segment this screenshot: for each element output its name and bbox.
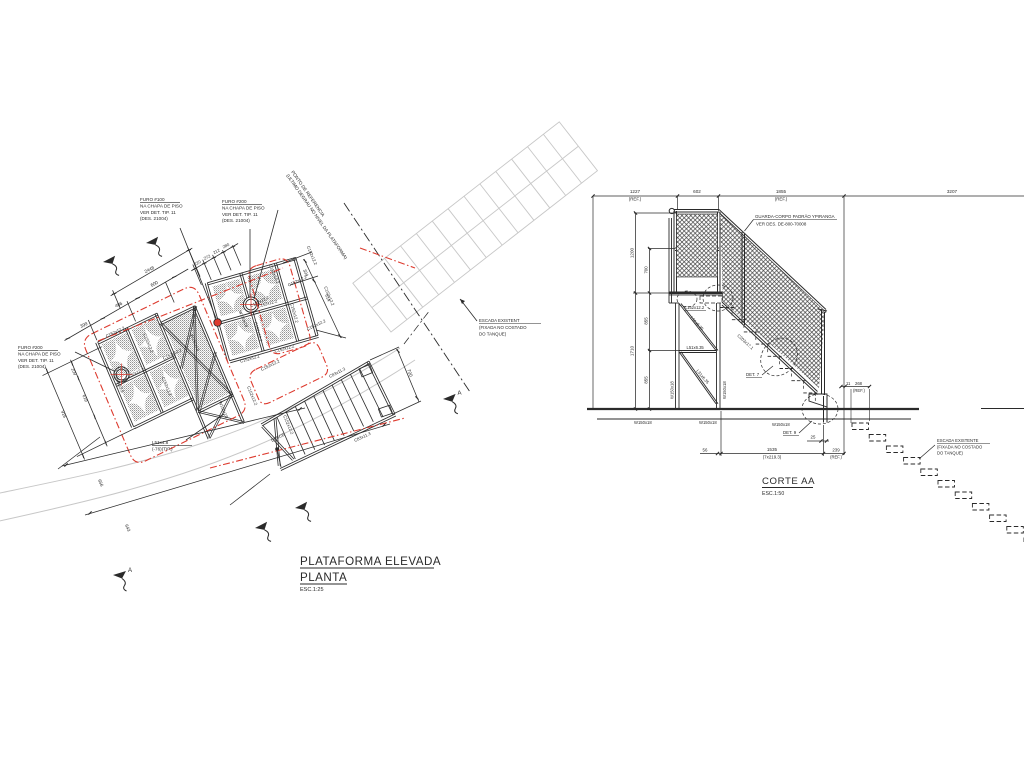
svg-text:VER DES. DE-800-70008: VER DES. DE-800-70008 xyxy=(756,222,807,227)
svg-text:CORTE AA: CORTE AA xyxy=(762,476,815,487)
svg-text:602: 602 xyxy=(693,189,701,194)
svg-text:W150x18: W150x18 xyxy=(722,381,727,399)
svg-text:W150x18: W150x18 xyxy=(670,381,675,399)
svg-text:(DES. 21004): (DES. 21004) xyxy=(18,364,46,369)
svg-text:268: 268 xyxy=(855,381,863,386)
svg-text:(-76)(TIP.): (-76)(TIP.) xyxy=(152,446,173,451)
svg-text:(7x219.3): (7x219.3) xyxy=(763,455,782,460)
svg-text:FURO #100: FURO #100 xyxy=(140,197,165,202)
svg-text:NA CHAPA DE PISO: NA CHAPA DE PISO xyxy=(222,205,265,210)
svg-text:700: 700 xyxy=(644,266,649,274)
svg-text:1710: 1710 xyxy=(630,345,635,356)
svg-text:ESCADA EXISTENT: ESCADA EXISTENT xyxy=(479,318,520,323)
svg-text:VER DET. TIP. 11: VER DET. TIP. 11 xyxy=(18,358,54,363)
svg-text:(REF.): (REF.) xyxy=(629,197,642,202)
svg-text:PLANTA: PLANTA xyxy=(300,571,347,584)
svg-text:1535: 1535 xyxy=(767,447,778,452)
svg-text:FURO #200: FURO #200 xyxy=(18,345,43,350)
svg-text:1227: 1227 xyxy=(630,189,641,194)
svg-text:239: 239 xyxy=(832,448,840,453)
svg-text:VER DET. TIP. 11: VER DET. TIP. 11 xyxy=(140,210,176,215)
svg-text:(REF.): (REF.) xyxy=(853,388,865,393)
svg-text:ESC.1:25: ESC.1:25 xyxy=(300,587,324,593)
svg-text:11: 11 xyxy=(846,381,851,386)
svg-text:1855: 1855 xyxy=(776,189,787,194)
svg-text:NA CHAPA DE PISO: NA CHAPA DE PISO xyxy=(140,203,183,208)
svg-text:W150x18: W150x18 xyxy=(634,420,652,425)
svg-text:(DES. 21004): (DES. 21004) xyxy=(140,216,168,221)
svg-text:W150x18: W150x18 xyxy=(699,420,717,425)
svg-text:NA CHAPA DE PISO: NA CHAPA DE PISO xyxy=(18,351,61,356)
svg-text:DO TANQUE): DO TANQUE) xyxy=(937,451,964,456)
svg-text:PLATAFORMA ELEVADA: PLATAFORMA ELEVADA xyxy=(300,555,441,568)
svg-text:ESC.1:50: ESC.1:50 xyxy=(762,491,784,497)
svg-text:ESCADA EXISTENTE: ESCADA EXISTENTE xyxy=(937,438,979,443)
svg-text:(REF.): (REF.) xyxy=(775,197,788,202)
svg-text:25: 25 xyxy=(811,435,816,440)
svg-text:DET. 7: DET. 7 xyxy=(746,372,760,377)
svg-text:(REF.): (REF.) xyxy=(830,455,842,460)
svg-text:VER DET. TIP. 11: VER DET. TIP. 11 xyxy=(222,212,258,217)
svg-text:W150x18: W150x18 xyxy=(772,422,790,427)
svg-text:C152x12.2: C152x12.2 xyxy=(684,305,705,310)
svg-text:(FIXADA NO COSTADO: (FIXADA NO COSTADO xyxy=(937,445,983,450)
svg-text:1200: 1200 xyxy=(630,247,635,258)
svg-text:(FIXADA NO COSTADO: (FIXADA NO COSTADO xyxy=(479,325,527,330)
svg-text:L51x4.8: L51x4.8 xyxy=(152,440,169,445)
svg-text:L51x6.35: L51x6.35 xyxy=(687,345,705,350)
svg-text:56: 56 xyxy=(703,448,708,453)
svg-text:855: 855 xyxy=(644,317,649,325)
svg-text:DO TANQUE): DO TANQUE) xyxy=(479,332,507,337)
svg-text:A: A xyxy=(457,390,462,396)
svg-text:(DES. 21004): (DES. 21004) xyxy=(222,218,250,223)
svg-text:A: A xyxy=(128,568,132,574)
svg-text:DET. 9: DET. 9 xyxy=(783,430,797,435)
svg-text:GUARDA-CORPO PADRÃO YPIRANGA: GUARDA-CORPO PADRÃO YPIRANGA xyxy=(755,214,835,219)
svg-text:3207: 3207 xyxy=(947,189,958,194)
svg-text:855: 855 xyxy=(644,376,649,384)
svg-text:FURO #200: FURO #200 xyxy=(222,199,247,204)
